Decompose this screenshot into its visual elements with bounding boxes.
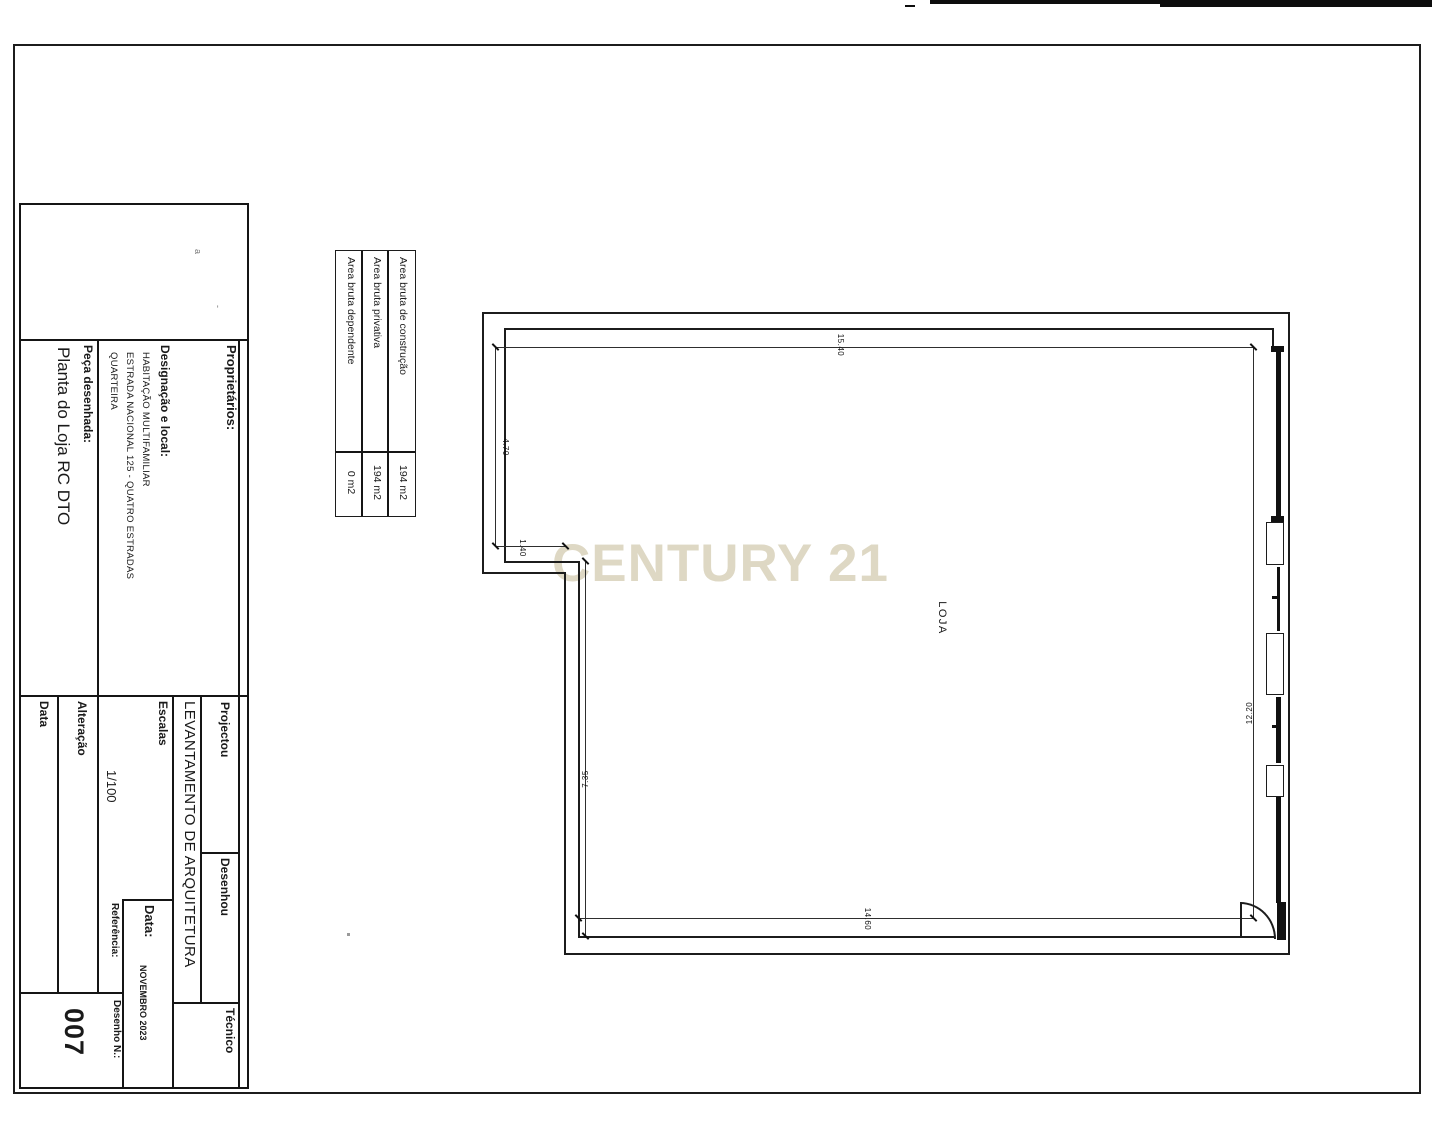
data-label: Data: bbox=[142, 905, 157, 938]
peca-desenhada-label: Peça desenhada: bbox=[81, 345, 95, 443]
scan-stray-mark: a bbox=[193, 249, 203, 254]
scan-stray-dot bbox=[347, 933, 350, 936]
dimension-text-bottom: 14.60 bbox=[862, 901, 872, 937]
area-table-line bbox=[362, 251, 364, 516]
escalas-label: Escalas bbox=[156, 701, 170, 746]
titleblock-divider bbox=[21, 339, 247, 341]
designacao-label: Designação e local: bbox=[158, 345, 172, 457]
window-glazing bbox=[1276, 697, 1281, 763]
designacao-line3: QUARTEIRA bbox=[108, 352, 119, 410]
room-label: LOJA bbox=[936, 598, 948, 638]
window-glazing bbox=[1276, 797, 1281, 903]
wall-inner-bottom bbox=[578, 936, 1274, 938]
projectou-label: Projectou bbox=[218, 702, 232, 757]
wall-outer-left-upper bbox=[482, 312, 484, 574]
titleblock-divider bbox=[202, 852, 240, 854]
titleblock-divider bbox=[239, 339, 241, 1087]
area-row-label: Area bruta de construção bbox=[397, 257, 409, 375]
window-glazing bbox=[1276, 352, 1281, 518]
door-jamb bbox=[1277, 902, 1286, 940]
dimension-line-top bbox=[495, 347, 1253, 348]
dimension-text-notch: 1.40 bbox=[517, 530, 527, 566]
window-mullion-tick bbox=[1272, 725, 1277, 728]
area-row-value: 0 m2 bbox=[345, 451, 357, 514]
area-row-value: 194 m2 bbox=[371, 451, 383, 514]
referencia-label: Referência: bbox=[109, 903, 120, 957]
wall-inner-top bbox=[504, 328, 1274, 330]
dimension-line-left-upper bbox=[495, 347, 496, 546]
titleblock-divider bbox=[174, 1002, 240, 1004]
scan-stray-mark: - bbox=[213, 305, 223, 308]
area-row-label: Area bruta dependente bbox=[345, 257, 357, 364]
dimension-text-left-lower: 7.35 bbox=[581, 761, 591, 797]
titleblock-divider bbox=[201, 695, 203, 1002]
dimension-line-right bbox=[1253, 347, 1254, 918]
desenhou-label: Desenhou bbox=[218, 858, 232, 916]
window-mullion-tick bbox=[1272, 596, 1277, 599]
designacao-line2: ESTRADA NACIONAL 125 - QUATRO ESTRADAS bbox=[124, 352, 135, 579]
dimension-text-top: 15.40 bbox=[835, 327, 845, 363]
titleblock-divider bbox=[98, 339, 100, 992]
dimension-line-left-lower bbox=[585, 561, 586, 936]
levantamento-title: LEVANTAMENTO DE ARQUITETURA bbox=[181, 701, 198, 968]
scanned-drawing-sheet: a - Proprietários: Projectou Desenhou Té… bbox=[0, 0, 1432, 1131]
dimension-text-right: 12.20 bbox=[1245, 695, 1255, 731]
wall-outer-notch bbox=[482, 572, 566, 574]
titleblock-divider bbox=[124, 899, 174, 901]
dimension-line-notch bbox=[495, 546, 566, 547]
window-glazing bbox=[1277, 567, 1280, 631]
wall-inner-notch bbox=[504, 561, 580, 563]
escalas-value: 1/100 bbox=[104, 770, 119, 803]
wall-pier bbox=[1266, 633, 1284, 695]
scan-artifact-top-bar-thick bbox=[1160, 0, 1432, 7]
alteracao-label: Alteração bbox=[75, 701, 89, 756]
century21-watermark: CENTURY 21 bbox=[552, 533, 889, 594]
wall-outer-left-lower bbox=[564, 572, 566, 955]
wall-pier bbox=[1266, 765, 1284, 797]
tecnico-label: Técnico bbox=[223, 1008, 237, 1053]
dimension-text-left-upper: 4.70 bbox=[500, 429, 510, 465]
area-row-label: Area bruta privativa bbox=[371, 257, 383, 348]
wall-inner-left-lower bbox=[578, 561, 580, 938]
titleblock-divider bbox=[21, 992, 124, 994]
wall-outer-bottom bbox=[564, 953, 1290, 955]
peca-desenhada-value: Planta do Loja RC DTO bbox=[53, 347, 73, 525]
dimension-line-bottom bbox=[578, 918, 1253, 919]
titleblock-divider bbox=[58, 695, 60, 992]
area-row-value: 194 m2 bbox=[397, 451, 409, 514]
drawing-number: 007 bbox=[58, 1008, 89, 1056]
data-value: NOVEMBRO 2023 bbox=[138, 965, 148, 1041]
proprietarios-label: Proprietários: bbox=[224, 345, 239, 430]
titleblock-divider bbox=[21, 695, 247, 697]
title-block: a - Proprietários: Projectou Desenhou Té… bbox=[19, 203, 249, 1089]
designacao-line1: HABITAÇÃO MULTIFAMILIAR bbox=[140, 352, 151, 487]
scan-artifact-dash bbox=[905, 5, 915, 7]
wall-pier bbox=[1266, 522, 1284, 565]
wall-outer-top bbox=[482, 312, 1290, 314]
data-column-label: Data bbox=[37, 701, 51, 727]
desenho-n-label: Desenho N.: bbox=[111, 1000, 122, 1058]
area-table: Area bruta de construção 194 m2 Area bru… bbox=[335, 250, 416, 517]
wall-outer-right bbox=[1288, 312, 1290, 955]
titleblock-divider bbox=[173, 695, 175, 1087]
area-table-line bbox=[388, 251, 390, 516]
